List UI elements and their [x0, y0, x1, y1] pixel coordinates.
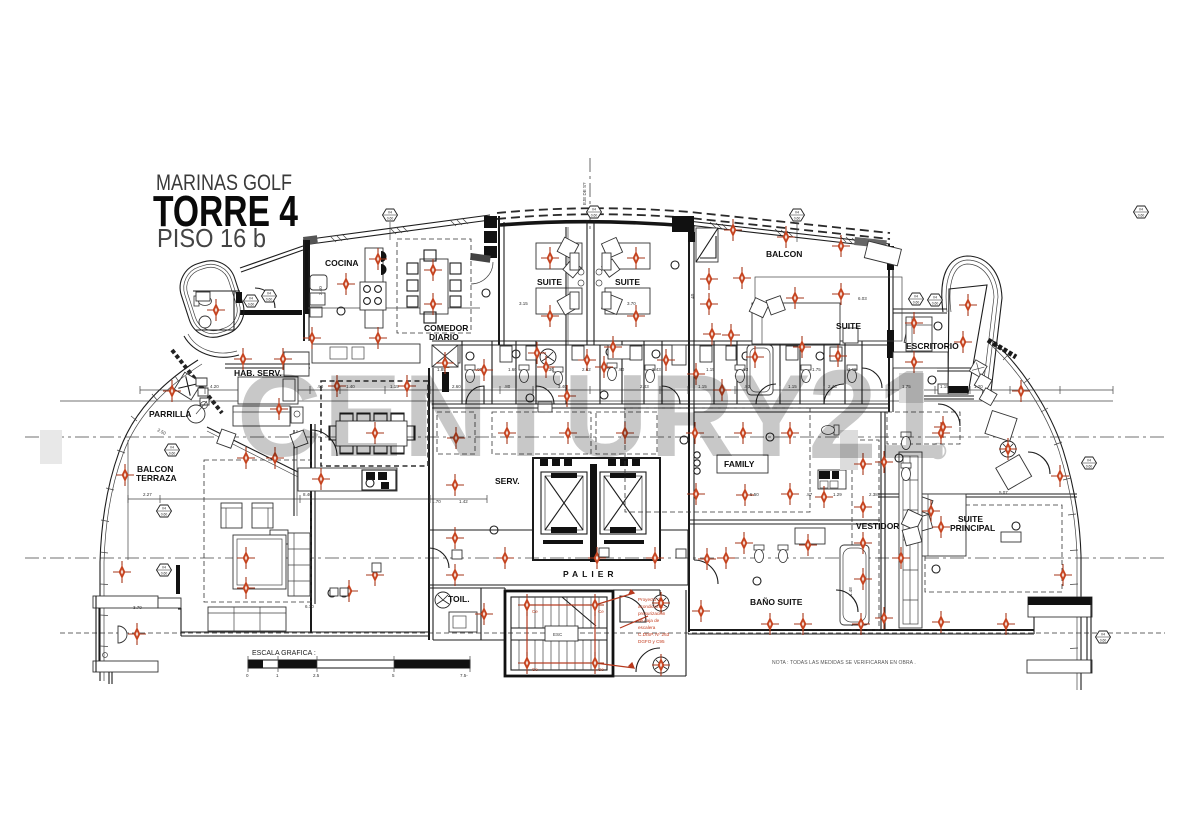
svg-text:1.29: 1.29 [833, 492, 842, 497]
svg-text:7.5-: 7.5- [460, 673, 468, 678]
svg-text:C.DISP. Nº 263: C.DISP. Nº 263 [638, 632, 670, 637]
svg-text:EJE DE S?: EJE DE S? [582, 182, 587, 205]
svg-text:Proyecto de: Proyecto de [638, 597, 663, 602]
svg-text:de caja de: de caja de [638, 618, 660, 623]
svg-text:PRINCIPAL: PRINCIPAL [950, 523, 995, 533]
svg-text:DIARIO: DIARIO [429, 332, 459, 342]
svg-text:5: 5 [392, 673, 395, 678]
svg-text:Ce: Ce [598, 667, 604, 672]
svg-text:2.50: 2.50 [157, 427, 168, 436]
svg-text:1.48: 1.48 [848, 587, 853, 596]
svg-text:COCINA: COCINA [325, 258, 359, 268]
svg-text:Ce: Ce [598, 609, 604, 614]
svg-text:3.70: 3.70 [627, 301, 636, 306]
svg-text:ESC: ESC [553, 632, 563, 637]
svg-text:3.15: 3.15 [519, 301, 528, 306]
svg-text:21: 21 [808, 344, 946, 485]
svg-text:6.70: 6.70 [305, 604, 314, 609]
svg-text:3.70: 3.70 [133, 605, 142, 610]
svg-text:PARRILLA: PARRILLA [149, 409, 191, 419]
svg-text:3.40: 3.40 [318, 286, 323, 295]
svg-text:CENTURY: CENTURY [237, 350, 812, 481]
svg-text:ESCALA GRAFICA :: ESCALA GRAFICA : [252, 650, 316, 657]
svg-text:PALIER: PALIER [563, 569, 618, 579]
svg-text:presurización: presurización [638, 611, 666, 616]
svg-text:TOIL.: TOIL. [448, 594, 470, 604]
svg-text:Ce: Ce [532, 609, 538, 614]
svg-text:8.40: 8.40 [303, 492, 312, 497]
svg-text:6.03: 6.03 [858, 296, 867, 301]
svg-text:SUITE: SUITE [836, 321, 861, 331]
svg-text:0: 0 [246, 673, 249, 678]
svg-text:DGFO y C95: DGFO y C95 [638, 639, 665, 644]
svg-text:BAÑO SUITE: BAÑO SUITE [750, 597, 803, 607]
svg-text:Ce: Ce [532, 667, 538, 672]
svg-text:PISO 16 b: PISO 16 b [157, 223, 266, 253]
svg-text:1.20: 1.20 [974, 384, 983, 389]
svg-text:escalera: escalera [638, 625, 656, 630]
svg-text:5.07: 5.07 [999, 490, 1008, 495]
svg-text:.40: .40 [690, 293, 695, 300]
svg-text:acondiciona...: acondiciona... [638, 604, 666, 609]
svg-text:TERRAZA: TERRAZA [136, 473, 177, 483]
svg-text:SUITE: SUITE [537, 277, 562, 287]
svg-text:2.27: 2.27 [143, 492, 152, 497]
svg-text:VESTIDOR: VESTIDOR [856, 521, 899, 531]
svg-text:4.20: 4.20 [210, 384, 219, 389]
svg-text:1.42: 1.42 [459, 499, 468, 504]
svg-text:1: 1 [276, 673, 279, 678]
svg-text:2.5: 2.5 [313, 673, 320, 678]
svg-text:NOTA : TODAS LAS MEDIDAS S: NOTA : TODAS LAS MEDIDAS SE VERIFICARAN … [772, 660, 916, 666]
svg-text:SUITE: SUITE [615, 277, 640, 287]
svg-text:2.38: 2.38 [869, 492, 878, 497]
svg-text:BALCON: BALCON [766, 249, 802, 259]
svg-text:1.70: 1.70 [432, 499, 441, 504]
svg-text:R: R [935, 447, 942, 457]
svg-text:.87: .87 [806, 492, 813, 497]
